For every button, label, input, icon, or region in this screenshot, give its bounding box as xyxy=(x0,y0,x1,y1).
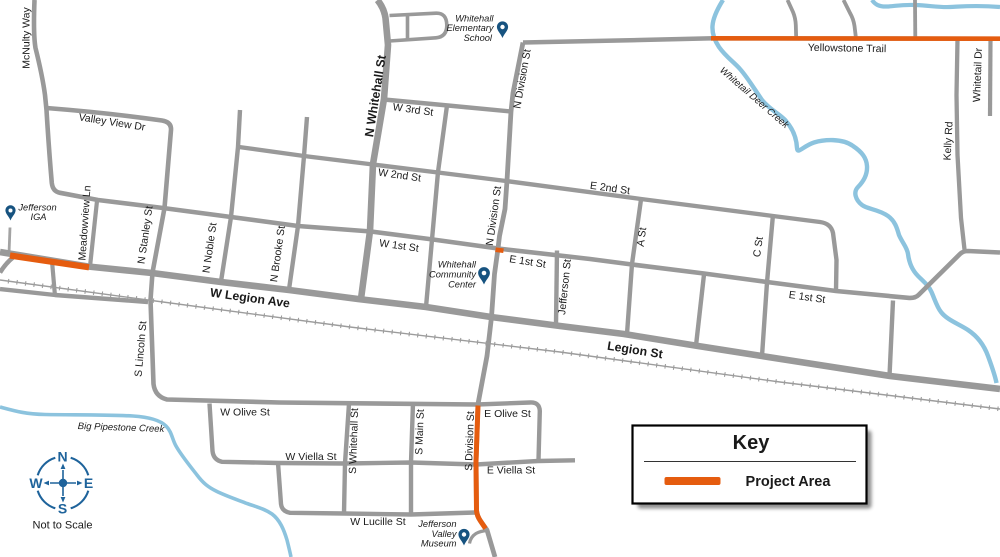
svg-text:IGA: IGA xyxy=(30,212,46,222)
svg-text:Museum: Museum xyxy=(421,539,457,549)
svg-text:E Olive St: E Olive St xyxy=(484,408,531,420)
svg-text:S Main St: S Main St xyxy=(413,409,427,455)
svg-text:Key: Key xyxy=(733,432,771,454)
svg-text:W Viella St: W Viella St xyxy=(285,451,336,463)
svg-text:Valley: Valley xyxy=(432,529,458,539)
svg-text:Yellowstone Trail: Yellowstone Trail xyxy=(808,42,887,55)
svg-text:W Olive St: W Olive St xyxy=(220,407,270,419)
svg-text:W: W xyxy=(29,475,43,491)
svg-text:Whitetail Dr: Whitetail Dr xyxy=(971,47,985,102)
svg-text:Whitehall: Whitehall xyxy=(438,260,477,270)
svg-text:Center: Center xyxy=(448,280,477,290)
svg-text:Jefferson: Jefferson xyxy=(17,203,56,213)
svg-text:E: E xyxy=(84,475,93,491)
svg-text:School: School xyxy=(464,33,493,43)
svg-text:Kelly Rd: Kelly Rd xyxy=(941,121,955,161)
svg-text:Community: Community xyxy=(429,269,477,279)
svg-text:Not to Scale: Not to Scale xyxy=(33,520,93,532)
svg-text:S: S xyxy=(58,501,67,517)
svg-text:W Lucille St: W Lucille St xyxy=(350,516,406,528)
svg-text:N: N xyxy=(57,449,67,465)
svg-text:McNulty Way: McNulty Way xyxy=(21,7,33,69)
svg-text:S Division St: S Division St xyxy=(463,411,477,471)
svg-text:E Viella St: E Viella St xyxy=(487,465,535,477)
svg-text:Whitehall: Whitehall xyxy=(455,14,494,24)
svg-text:Project Area: Project Area xyxy=(746,474,832,490)
svg-text:S Whitehall St: S Whitehall St xyxy=(347,408,361,474)
svg-text:Elementary: Elementary xyxy=(446,23,494,33)
svg-text:Jefferson: Jefferson xyxy=(417,519,456,529)
